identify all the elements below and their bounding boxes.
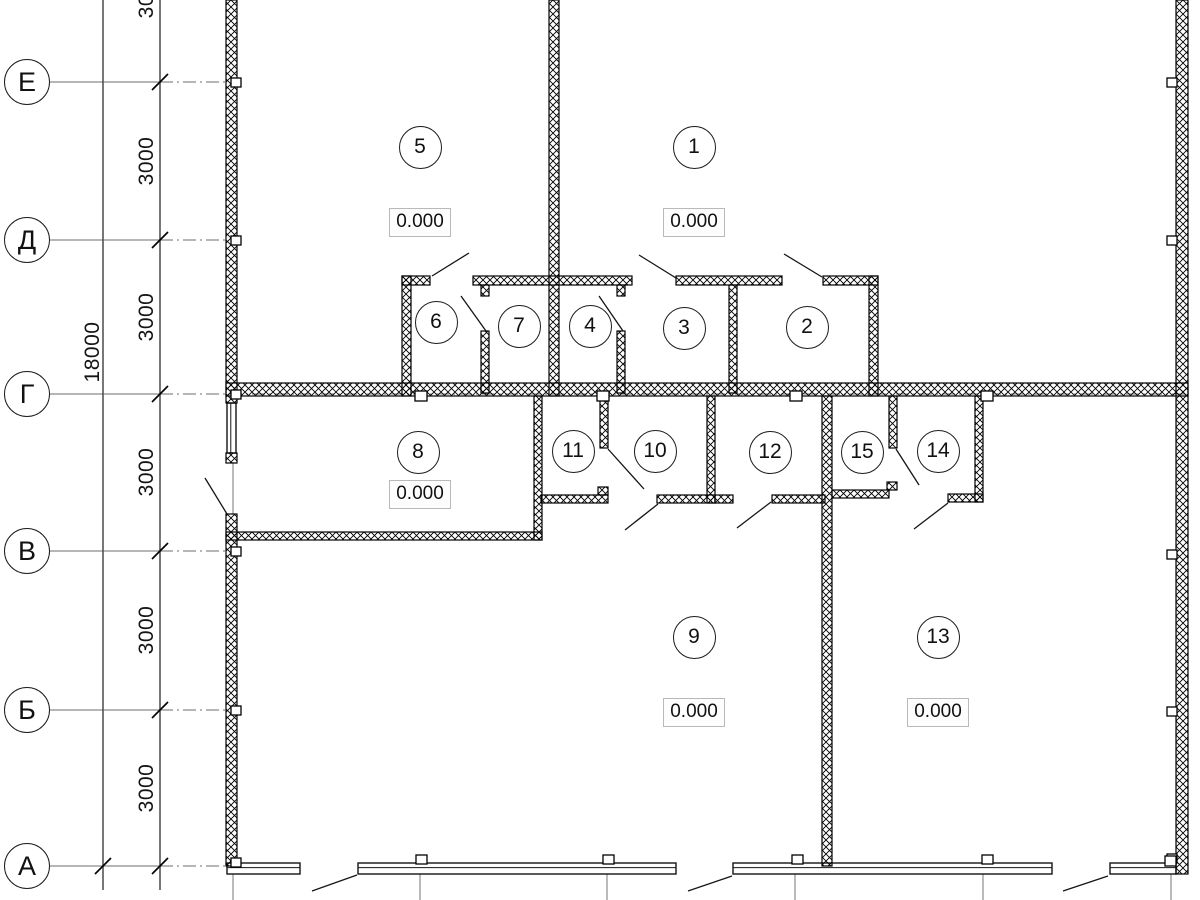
- grid-centerlines-layer: [233, 462, 1171, 900]
- wall: [481, 285, 489, 296]
- wall: [226, 532, 542, 540]
- pier-marker: [231, 858, 241, 867]
- room-number-circle: 11: [552, 430, 595, 473]
- wall: [707, 396, 715, 503]
- door-swing: [432, 253, 469, 276]
- room-number-circle: 3: [663, 307, 706, 350]
- door-swing: [784, 254, 822, 277]
- wall: [541, 495, 608, 503]
- interval-dimension-label: 3000: [135, 448, 159, 497]
- pier-marker: [416, 855, 427, 864]
- dimension-lines-layer: [103, 0, 160, 890]
- pier-marker: [792, 855, 803, 864]
- axis-circle: Г: [4, 371, 50, 417]
- axis-lines-layer: [48, 82, 1188, 866]
- wall: [549, 0, 559, 396]
- interval-dimension-label: 3000: [135, 606, 159, 655]
- wall: [473, 276, 632, 285]
- wall: [402, 276, 430, 285]
- door-swing: [1063, 876, 1108, 891]
- plan-linework: [0, 0, 1200, 900]
- room-number-circle: 2: [786, 306, 829, 349]
- door-swings-layer: [205, 253, 1108, 891]
- pier-marker: [231, 706, 241, 715]
- pier-marker: [1167, 236, 1177, 245]
- room-number-circle: 5: [399, 126, 442, 169]
- room-number-circle: 10: [634, 430, 677, 473]
- window: [733, 863, 1052, 874]
- wall: [481, 331, 489, 393]
- elevation-label: 0.000: [907, 698, 969, 727]
- wall: [617, 285, 625, 296]
- door-swing: [461, 296, 486, 331]
- room-number-circle: 15: [841, 431, 884, 474]
- floor-plan: ЕДГВБА5167432811101215149130.0000.0000.0…: [0, 0, 1200, 900]
- door-swing: [914, 503, 948, 529]
- wall: [402, 276, 411, 396]
- door-swing: [625, 504, 658, 530]
- interval-dimension-label: 3000: [135, 293, 159, 342]
- pier-markers-layer: [231, 78, 1177, 867]
- pier-marker: [597, 391, 609, 401]
- pier-marker: [1167, 550, 1177, 559]
- elevation-label: 0.000: [389, 208, 451, 237]
- wall: [676, 276, 782, 285]
- room-number-circle: 6: [415, 301, 458, 344]
- wall: [772, 495, 825, 503]
- room-number-circle: 14: [917, 430, 960, 473]
- wall: [1176, 0, 1188, 874]
- pier-marker: [1167, 78, 1177, 87]
- elevation-label: 0.000: [663, 208, 725, 237]
- wall: [600, 396, 608, 448]
- interval-dimension-label: 3000: [135, 137, 159, 186]
- interval-dimension-label: 3000: [135, 0, 159, 18]
- window: [227, 403, 236, 453]
- room-number-circle: 9: [673, 616, 716, 659]
- wall: [226, 453, 237, 463]
- wall: [889, 396, 897, 448]
- pier-marker: [231, 390, 241, 399]
- door-swing: [737, 502, 771, 528]
- wall: [729, 285, 737, 393]
- pier-marker: [231, 236, 241, 245]
- wall: [975, 396, 983, 502]
- room-number-circle: 8: [397, 431, 440, 474]
- pier-marker: [982, 855, 993, 864]
- room-number-circle: 1: [673, 126, 716, 169]
- pier-marker: [1165, 856, 1176, 866]
- wall: [598, 487, 608, 495]
- pier-marker: [603, 855, 614, 864]
- pier-marker: [231, 78, 241, 87]
- interval-dimension-label: 3000: [135, 764, 159, 813]
- wall: [715, 495, 733, 503]
- wall: [822, 396, 832, 866]
- room-number-circle: 13: [917, 616, 960, 659]
- room-number-circle: 7: [498, 305, 541, 348]
- room-number-circle: 4: [569, 305, 612, 348]
- pier-marker: [1167, 707, 1177, 716]
- door-swing: [896, 449, 919, 485]
- axis-circle: Б: [4, 687, 50, 733]
- axis-circle: А: [4, 843, 50, 889]
- axis-circle: В: [4, 528, 50, 574]
- axis-circle: Д: [4, 217, 50, 263]
- wall: [617, 331, 625, 393]
- elevation-label: 0.000: [663, 698, 725, 727]
- room-number-circle: 12: [749, 431, 792, 474]
- total-dimension-label: 18000: [81, 322, 105, 383]
- pier-marker: [790, 391, 802, 401]
- wall: [226, 0, 237, 403]
- wall: [657, 495, 715, 503]
- door-swing: [205, 478, 227, 514]
- pier-marker: [415, 391, 427, 401]
- door-swing: [688, 876, 732, 891]
- wall: [869, 276, 878, 396]
- wall: [226, 514, 237, 866]
- wall: [832, 490, 889, 498]
- elevation-label: 0.000: [389, 480, 451, 509]
- axis-circle: Е: [4, 59, 50, 105]
- wall: [534, 396, 542, 540]
- door-swing: [312, 875, 357, 891]
- wall: [226, 383, 1188, 396]
- pier-marker: [231, 547, 241, 556]
- door-swing: [639, 255, 676, 278]
- window: [358, 863, 676, 874]
- wall: [887, 482, 897, 490]
- pier-marker: [981, 391, 993, 401]
